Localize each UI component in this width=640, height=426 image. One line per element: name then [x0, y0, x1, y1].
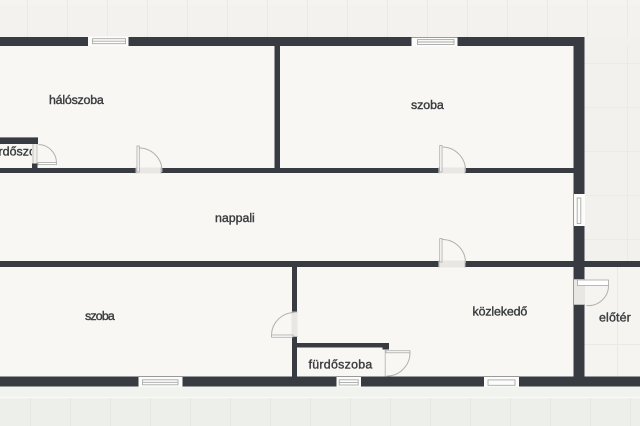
svg-text:nappali: nappali: [215, 211, 255, 225]
svg-text:szoba: szoba: [85, 309, 115, 323]
svg-text:előtér: előtér: [599, 310, 631, 324]
svg-text:közlekedő: közlekedő: [473, 304, 528, 318]
svg-text:hálószoba: hálószoba: [49, 93, 104, 107]
svg-text:szoba: szoba: [411, 98, 444, 112]
svg-text:fürdőszoba: fürdőszoba: [309, 358, 373, 372]
